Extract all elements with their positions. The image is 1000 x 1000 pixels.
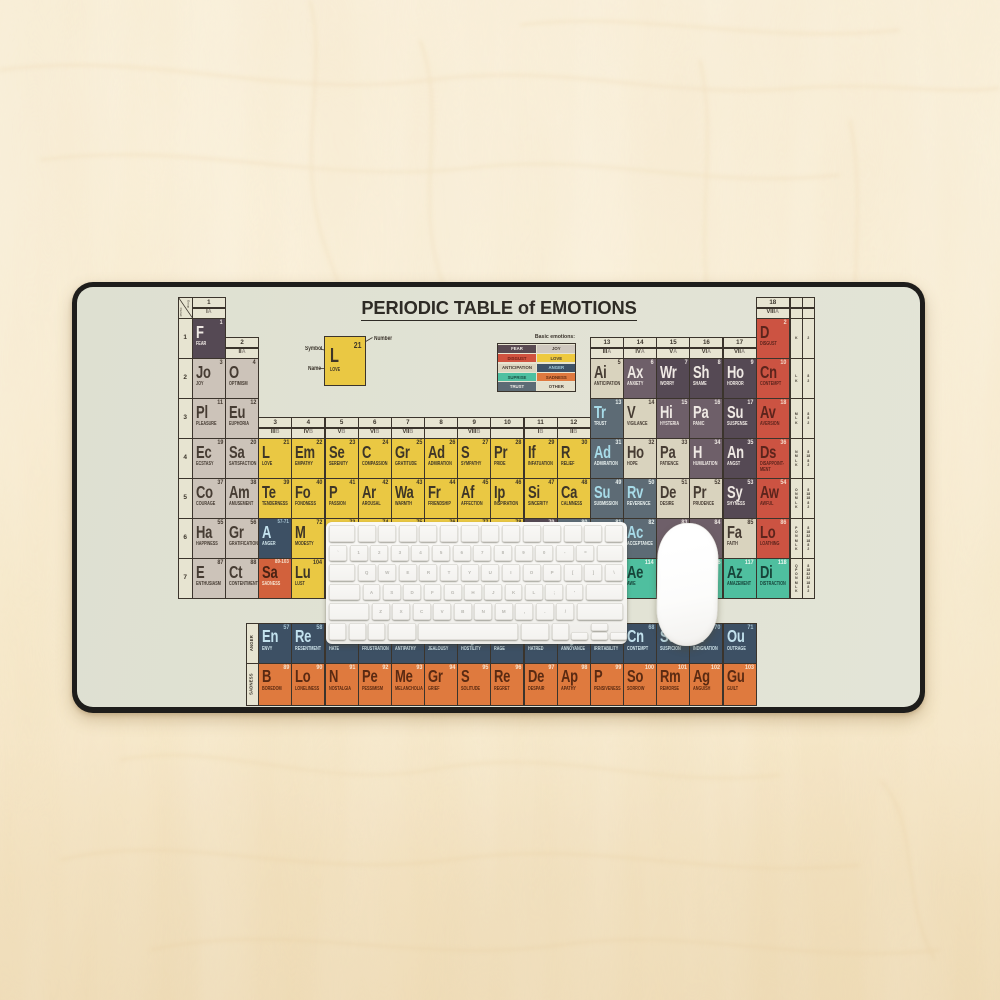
svg-text:Group: Group: [186, 300, 190, 309]
svg-text:Period: Period: [179, 308, 183, 317]
